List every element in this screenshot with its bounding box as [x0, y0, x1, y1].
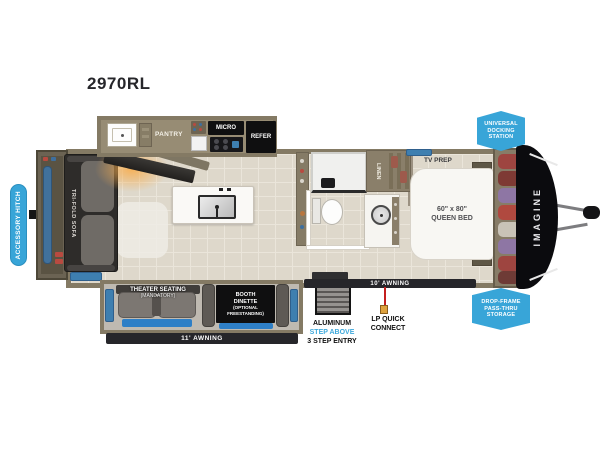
front-cap: IMAGINE — [516, 145, 558, 289]
dinette-label-line1: BOOTH — [236, 292, 256, 299]
rear-marker-light — [51, 157, 56, 161]
linen-label: LINEN — [375, 163, 381, 180]
bed-type-label: QUEEN BED — [431, 214, 473, 223]
theater-label: THEATER SEATING (MANDATORY) — [112, 287, 204, 307]
sofa-label: TRI-FOLD SOFA — [70, 189, 76, 238]
theater-label-line2: (MANDATORY) — [112, 293, 204, 299]
kitchen-slide: PANTRY MICRO REFER — [97, 116, 277, 157]
rear-marker-light — [43, 157, 48, 161]
refer-label: REFER — [251, 134, 271, 140]
hitch-coupler — [583, 206, 600, 219]
entry-steps — [315, 288, 351, 315]
docking-line3: STATION — [489, 134, 514, 141]
accessory-hitch-label: ACCESSORY HITCH — [15, 191, 22, 259]
slide-window — [290, 289, 298, 322]
docking-line1: UNIVERSAL — [484, 121, 518, 128]
dinette-bench — [276, 284, 289, 327]
brand-wrap: IMAGINE — [516, 145, 558, 289]
kitchen-sink — [107, 123, 137, 147]
dropframe-line2: PASS-THRU — [484, 306, 517, 313]
control-panel — [191, 121, 206, 134]
vanity-sink — [371, 205, 391, 225]
bath-partition-wall — [306, 245, 370, 250]
refrigerator: REFER — [246, 121, 276, 153]
theater-mat — [122, 319, 192, 327]
vanity-side-panel — [392, 197, 399, 245]
range-cooktop — [210, 137, 243, 152]
awning-10ft: 10' AWNING — [304, 279, 476, 288]
linen-label-wrap: LINEN — [370, 151, 386, 191]
shower — [311, 152, 367, 193]
brand-label: IMAGINE — [532, 187, 542, 247]
sofa-label-wrap: TRI-FOLD SOFA — [66, 155, 80, 271]
lp-note-line1: LP QUICK — [358, 316, 418, 325]
lp-pointer-line — [384, 287, 386, 306]
awning-11ft: 11' AWNING — [106, 333, 298, 344]
docking-line2: DOCKING — [487, 128, 514, 135]
awning-11ft-label: 11' AWNING — [181, 335, 223, 342]
dinette-label-line2: DINETTE — [234, 299, 258, 306]
bath-vanity — [364, 194, 400, 248]
bath-partition-wall — [306, 190, 311, 250]
drop-frame-callout: DROP-FRAME PASS-THRU STORAGE — [472, 288, 530, 330]
dropframe-line3: STORAGE — [487, 312, 516, 319]
floorplan-model-title: 2970RL — [87, 74, 150, 94]
lp-note: LP QUICK CONNECT — [358, 316, 418, 334]
microwave: MICRO — [208, 121, 244, 135]
tv-prep-label: TV PREP — [424, 157, 452, 164]
awning-10ft-label: 10' AWNING — [370, 281, 409, 287]
dinette-label-line4: FREESTANDING) — [227, 311, 264, 316]
toilet — [321, 199, 343, 225]
universal-docking-callout: UNIVERSAL DOCKING STATION — [477, 111, 525, 151]
dropframe-line1: DROP-FRAME — [481, 299, 520, 306]
kitchen-cabinet — [139, 123, 152, 147]
lp-connector — [380, 305, 388, 314]
entry-note-line3: 3 STEP ENTRY — [294, 338, 370, 347]
rear-window — [43, 166, 52, 264]
bed-size-label: 60" x 80" — [437, 205, 467, 214]
sofa-cushion — [81, 215, 114, 266]
island-knob — [219, 188, 223, 191]
toilet-tank — [312, 198, 321, 224]
living-window — [70, 272, 102, 281]
living-slide: THEATER SEATING (MANDATORY) BOOTH DINETT… — [100, 280, 303, 334]
micro-label: MICRO — [216, 125, 236, 131]
linen-closet: LINEN — [366, 150, 411, 192]
dinette-table: BOOTH DINETTE (OPTIONAL FREESTANDING) — [216, 285, 275, 323]
queen-bed: 60" x 80" QUEEN BED — [410, 168, 494, 260]
island-sink — [198, 195, 236, 219]
kitchen-island — [172, 186, 254, 224]
living-area-rug — [116, 202, 168, 258]
rear-taillight — [55, 252, 63, 257]
accessory-hitch-callout: ACCESSORY HITCH — [10, 184, 27, 266]
floorplan-page: 2970RL ACCESSORY HITCH TRI-FOLD SOFA — [0, 0, 600, 450]
oven — [191, 136, 207, 151]
bedroom-window — [406, 149, 432, 156]
dinette-mat — [219, 323, 273, 329]
shower-fixture — [321, 178, 335, 188]
lp-note-line2: CONNECT — [358, 325, 418, 334]
island-knob — [227, 188, 231, 191]
kitchen-faucet — [121, 134, 124, 137]
rear-taillight — [55, 259, 63, 264]
pantry-label: PANTRY — [155, 131, 183, 138]
